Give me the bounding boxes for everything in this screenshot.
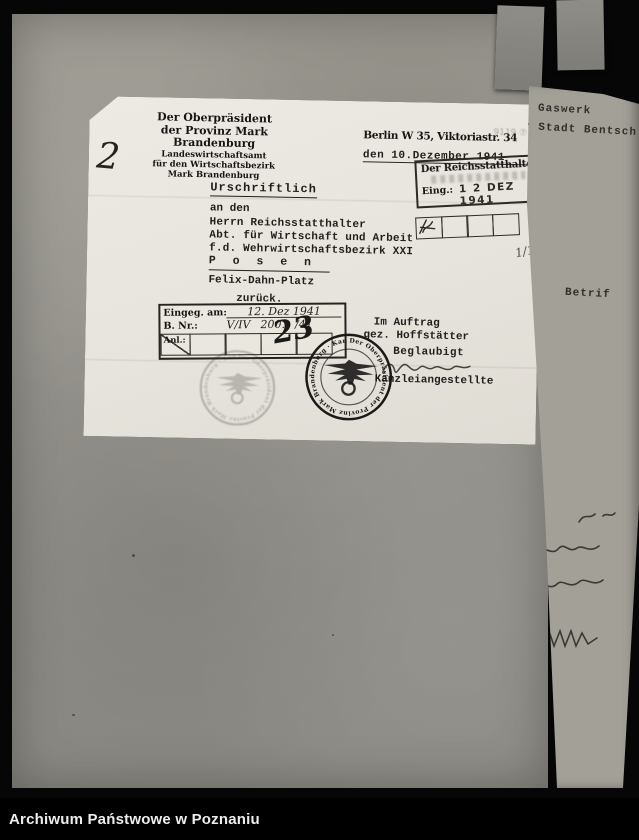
grid-cell xyxy=(416,216,444,239)
address-block: Herrn Reichsstatthalter Abt. für Wirtsch… xyxy=(209,216,414,259)
address-street: Felix-Dahn-Platz xyxy=(208,274,314,288)
eagle-seal-icon: Der Oberpräsident der Provinz Mark Brand… xyxy=(302,330,396,424)
grid-cell xyxy=(466,214,494,237)
grid-cell xyxy=(492,213,520,236)
entry-row1-label: Eingeg. am: xyxy=(163,307,226,318)
handwritten-check-mark xyxy=(417,218,440,236)
paper-speck xyxy=(332,634,334,636)
arrival-date-stamp: Der Reichsstatthalter Eing.: 1 2 DEZ 194… xyxy=(414,154,538,208)
page-fragment-top-right xyxy=(495,5,545,91)
arrival-eing-label: Eing.: xyxy=(422,185,454,198)
entry-row3-label: Anl.: xyxy=(161,334,191,356)
faint-eagle-seal-icon: Der Oberpräsident der Provinz Mark Brand… xyxy=(197,347,279,429)
adjacent-page-line: r Stadt Bentsch xyxy=(523,121,638,139)
arrival-stamp-grid xyxy=(417,213,519,239)
paper-speck xyxy=(132,554,135,557)
address-city: P o s e n xyxy=(209,254,330,272)
archive-caption-bar: Archiwum Państwowe w Poznaniu xyxy=(0,798,639,840)
bleedthrough-text: 9119 ⑦ xyxy=(493,128,527,139)
entry-file-number: V/IV xyxy=(226,319,250,330)
letter-sheet: 2 Der Oberpräsident der Provinz Mark Bra… xyxy=(83,96,541,445)
archive-scan-frame: 2 Der Oberpräsident der Provinz Mark Bra… xyxy=(0,0,639,840)
subject-urschriftlich: Urschriftlich xyxy=(210,180,317,198)
signature-block: Im Auftrag gez. Hoffstätter Beglaubigt K… xyxy=(364,316,534,319)
adjacent-page-line: Gaswerk xyxy=(538,103,592,118)
entry-row2-label: B. Nr.: xyxy=(163,321,197,332)
paper-speck xyxy=(72,714,75,716)
adjacent-page-line: Betrif xyxy=(565,287,611,301)
im-auftrag-line: Im Auftrag xyxy=(374,316,440,329)
archive-caption: Archiwum Państwowe w Poznaniu xyxy=(9,811,260,828)
salutation: an den xyxy=(210,202,250,215)
letterhead: Der Oberpräsident der Provinz Mark Brand… xyxy=(118,111,309,182)
letterhead-line: der Provinz Mark Brandenburg xyxy=(119,123,309,152)
arrival-eing-date: 1 2 DEZ 1941 xyxy=(459,180,533,208)
grid-cell xyxy=(441,215,469,238)
page-fragment-top-right xyxy=(556,0,604,70)
